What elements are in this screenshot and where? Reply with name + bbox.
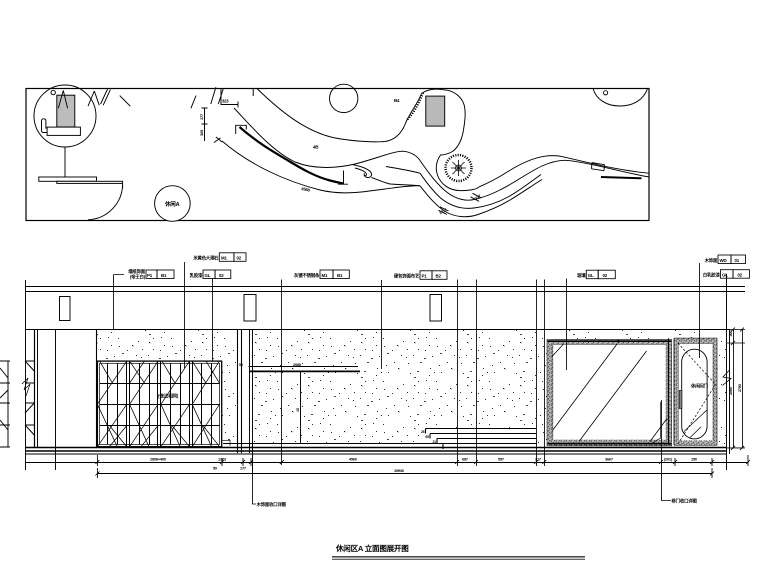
svg-text:P1: P1 — [422, 274, 428, 279]
svg-text:(做法相同): (做法相同) — [158, 393, 179, 400]
svg-text:300: 300 — [729, 331, 733, 337]
svg-text:2780: 2780 — [738, 384, 742, 392]
svg-text:177: 177 — [240, 466, 246, 471]
svg-text:19936: 19936 — [394, 468, 405, 473]
svg-text:557: 557 — [498, 457, 504, 462]
svg-text:01: 01 — [735, 258, 740, 263]
svg-text:02: 02 — [219, 273, 224, 278]
svg-text:玻璃: 玻璃 — [577, 272, 586, 279]
svg-text:M1: M1 — [322, 273, 328, 278]
svg-text:WD: WD — [720, 258, 727, 263]
svg-text:移门收口详图: 移门收口详图 — [672, 498, 698, 505]
svg-text:4B: 4B — [313, 145, 319, 150]
svg-text:150: 150 — [691, 457, 697, 462]
svg-text:休闲间门: 休闲间门 — [690, 383, 709, 390]
svg-text:50: 50 — [239, 363, 243, 367]
svg-text:02: 02 — [237, 256, 242, 261]
svg-text:3667: 3667 — [605, 457, 613, 462]
svg-text:(帝王白): (帝王白) — [130, 274, 146, 281]
svg-text:休闲区A 立面图展开图: 休闲区A 立面图展开图 — [335, 543, 409, 553]
svg-text:2988: 2988 — [293, 363, 301, 367]
svg-text:2580: 2580 — [729, 387, 733, 395]
svg-text:1273: 1273 — [218, 457, 227, 462]
svg-text:305: 305 — [199, 129, 204, 136]
svg-text:木饰面收口详图: 木饰面收口详图 — [256, 501, 287, 508]
svg-text:白乳胶漆: 白乳胶漆 — [703, 272, 721, 279]
svg-text:317: 317 — [535, 457, 541, 462]
svg-text:B1: B1 — [161, 273, 167, 278]
svg-text:P1: P1 — [147, 273, 153, 278]
svg-text:02: 02 — [738, 273, 743, 278]
svg-text:45: 45 — [616, 340, 620, 344]
svg-text:B4: B4 — [394, 98, 400, 103]
svg-text:323: 323 — [222, 99, 229, 104]
svg-text:米黄色大理石: 米黄色大理石 — [193, 255, 219, 262]
svg-text:4560: 4560 — [349, 457, 357, 462]
svg-text:177: 177 — [199, 113, 204, 120]
svg-text:GL: GL — [588, 273, 594, 278]
svg-text:687: 687 — [462, 457, 468, 462]
svg-text:GL: GL — [205, 273, 211, 278]
svg-text:15: 15 — [296, 408, 300, 412]
svg-text:木饰面: 木饰面 — [704, 257, 718, 264]
svg-text:2898+400: 2898+400 — [150, 457, 166, 462]
svg-text:休闲A: 休闲A — [164, 200, 180, 208]
svg-text:50: 50 — [213, 466, 217, 471]
svg-text:乳胶漆: 乳胶漆 — [190, 272, 203, 279]
svg-text:25: 25 — [421, 430, 425, 434]
svg-text:硬包饰面布艺: 硬包饰面布艺 — [394, 273, 420, 280]
svg-text:|201|: |201| — [664, 457, 672, 462]
svg-text:B2: B2 — [436, 274, 442, 279]
svg-text:21: 21 — [433, 440, 437, 444]
svg-text:02: 02 — [603, 273, 608, 278]
svg-text:4588: 4588 — [301, 186, 311, 193]
svg-text:B1: B1 — [337, 273, 343, 278]
svg-text:25: 25 — [426, 435, 430, 439]
svg-text:GL: GL — [722, 273, 728, 278]
svg-text:737: 737 — [474, 193, 483, 201]
svg-text:灰镜不锈钢条: 灰镜不锈钢条 — [294, 272, 320, 279]
svg-text:M1: M1 — [221, 256, 227, 261]
